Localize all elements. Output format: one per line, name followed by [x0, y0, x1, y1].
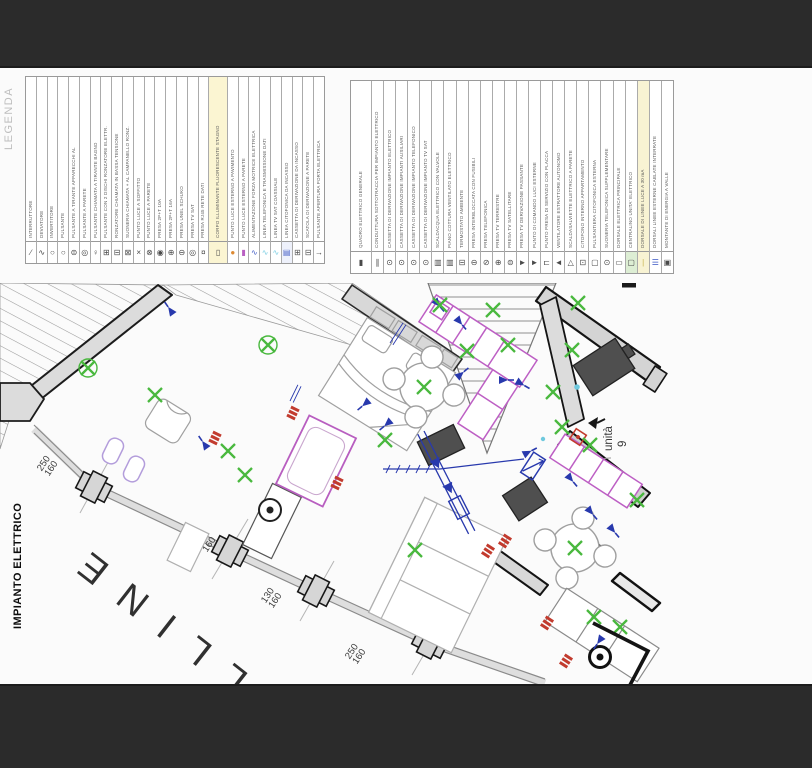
legend-column-label: PRESA UNEL SCHUKO: [177, 77, 187, 241]
symbol-column-symbol: |: [638, 251, 649, 273]
symbol-column-symbol: ▢: [626, 251, 637, 273]
legend-column-label: CORPO ILLUMINANTE FLUORESCENTE STAGNO: [209, 77, 227, 241]
bottom-letterbox-bar: [0, 684, 812, 768]
legend-column: PRESA UNEL SCHUKO ⊖: [177, 77, 188, 263]
symbol-column: PRESA INTERBLOCCATA CON FUSIBILI ⊖: [469, 81, 481, 273]
dim-window-1: 250160: [35, 454, 60, 478]
legend-column-symbol: ♀: [91, 241, 101, 263]
symbol-column-symbol: ▢: [589, 251, 600, 273]
legend-column: INTERRUTTORE ∕: [26, 77, 37, 263]
legend-column: PUNTO LUCE ESTERNO A PARETE ▮: [239, 77, 250, 263]
dim-window-4: 250160: [343, 642, 368, 666]
legend-column: SUONERIA CHIAMATA + AL CAMPANELLO RONZ. …: [123, 77, 134, 263]
legend-column-symbol: ○: [58, 241, 68, 263]
symbol-column: DORSALE ELETTRICA PRINCIPALE ▭: [614, 81, 626, 273]
symbol-column-label: CENTRALINO UNITA' ELETTRICO: [626, 81, 637, 251]
legend-column-label: INTERRUTTORE: [26, 77, 36, 241]
armchair: [143, 397, 193, 446]
legend-column-label: PULSANTE CON 2 DISCHI RONZATORE ELETTR.: [101, 77, 111, 241]
legend-column: PULSANTE ○: [58, 77, 69, 263]
legend-column-symbol: ⊟: [303, 241, 313, 263]
symbol-column: MONTANTE DI ENERGIA A VALLE ▣: [662, 81, 673, 273]
symbol-column-label: CITOFONO INTERNO APPARTAMENTO: [577, 81, 588, 251]
legend-column-label: PULSANTE A TIRANTE APPARECCHI AL: [69, 77, 79, 241]
legend-column: PULSANTE CHIAMATA A TIRANTE BAGNO ♀: [91, 77, 102, 263]
legend-column: CORPO ILLUMINANTE FLUORESCENTE STAGNO ▯: [209, 77, 228, 263]
legend-column-symbol: ▯: [209, 241, 227, 263]
symbol-column: PRESA TV SATELLITARE ⊜: [505, 81, 517, 273]
legend-column-symbol: ●: [228, 241, 238, 263]
legend-column-label: DEVIATORE: [37, 77, 47, 241]
coffee-table: [417, 425, 464, 466]
symbol-column-label: TERMOSTATO AMBIENTE: [457, 81, 468, 251]
symbol-column-symbol: ▥: [444, 251, 455, 273]
symbol-column: CASSETTA DI DERIVAZIONE IMPIANTO TV SAT …: [420, 81, 432, 273]
symbol-column: CASSETTA DI DERIVAZIONE IMPIANTO TELEFON…: [408, 81, 420, 273]
legend-column-symbol: ⊞: [293, 241, 303, 263]
symbol-column-label: PRESA TELEFONICA: [481, 81, 492, 251]
legend-column-label: PUNTO LUCE ESTERNO A PARETE: [239, 77, 249, 241]
symbol-column: SCALDACQUA ELETTRICO CON VALVOLE ▥: [432, 81, 444, 273]
symbol-column-symbol: ⊘: [481, 251, 492, 273]
symbol-column-symbol: ⊙: [384, 251, 395, 273]
sofa: [369, 497, 508, 652]
symbol-column: TERMOSTATO AMBIENTE ⊟: [457, 81, 469, 273]
legend-column: PRESA 2P+T 16A ⊕: [166, 77, 177, 263]
symbol-column-symbol: ⊏: [541, 251, 552, 273]
legend-column-label: PULSANTE: [58, 77, 68, 241]
legend-column-symbol: ⊕: [166, 241, 176, 263]
symbol-column-symbol: ▭: [614, 251, 625, 273]
symbol-column-symbol: ⊙: [420, 251, 431, 273]
symbol-column-label: SUONERIA TELEFONICA SUPPLEMENTARE: [601, 81, 612, 251]
legend-column-label: PULSANTE APERTURA PORTA ELETTRICA: [314, 77, 324, 241]
symbol-column: PIANO COTTURA VENTILATO ELETTRICO ▥: [444, 81, 456, 273]
symbol-column-symbol: ◄: [553, 251, 564, 273]
symbol-column: CASSETTA DI DERIVAZIONE IMPIANTO ELETTRI…: [384, 81, 396, 273]
legend-column-label: LINEA TELEFONICA E TRASMISSIONE DATI: [260, 77, 270, 241]
legend-column: PULSANTE A TIRANTE APPARECCHI AL ⊜: [69, 77, 80, 263]
legend-column-symbol: ∕: [26, 241, 36, 263]
north-dash: [622, 283, 636, 288]
legend-column: PUNTO LUCE A PARETE ⊗: [145, 77, 156, 263]
symbol-column-label: MONTANTE DI ENERGIA A VALLE: [662, 81, 673, 251]
legend-column-label: PUNTO LUCE ESTERNO A PAVIMENTO: [228, 77, 238, 241]
symbol-column-label: SCALDASALVIETTE ELETTRICO A PARETE: [565, 81, 576, 251]
symbol-column-symbol: ►: [517, 251, 528, 273]
legend-column-label: SUONERIA CHIAMATA + AL CAMPANELLO RONZ.: [123, 77, 133, 241]
symbol-column: SUONERIA TELEFONICA SUPPLEMENTARE ⊙: [601, 81, 613, 273]
bathroom-sink: [100, 436, 126, 466]
symbol-column-symbol: ∥: [372, 251, 383, 273]
symbol-column-label: CONDUTTURA SOTTOTRACCIA PER IMPIANTO ELE…: [372, 81, 383, 251]
unit-label: unità9: [603, 425, 629, 451]
legend-column: DEVIATORE ∿: [37, 77, 48, 263]
symbol-column-symbol: ☰: [650, 251, 661, 273]
symbol-column-symbol: ⊜: [505, 251, 516, 273]
symbol-column: PRESA TV DERIVAZIONE PASSANTE ►: [517, 81, 529, 273]
legenda-title: LEGENDA: [3, 87, 15, 150]
side-cabinet: [167, 522, 209, 571]
symbol-column: QUADRO ELETTRICO GENERALE ▮: [351, 81, 372, 273]
legend-column-symbol: ⊟: [112, 241, 122, 263]
symbol-column-symbol: ►: [529, 251, 540, 273]
legend-column-label: INVERTITORE: [48, 77, 58, 241]
symbol-column-symbol: ⊟: [457, 251, 468, 273]
legend-column-label: PUNTO LUCE A PARETE: [145, 77, 155, 241]
legend-column: PULSANTE A PARETE ◎: [80, 77, 91, 263]
legend-column: PRESA RJ45 RETE DATI ¤: [199, 77, 210, 263]
legend-column: INVERTITORE ○: [48, 77, 59, 263]
legend-column-symbol: ▤: [282, 241, 292, 263]
legend-column-symbol: ⊗: [145, 241, 155, 263]
legend-column-symbol: ◎: [80, 241, 90, 263]
legend-column-label: LINEA CITOFONICA DA INCASSO: [282, 77, 292, 241]
legend-column-symbol: ⊠: [123, 241, 133, 263]
legend-column-symbol: ○: [48, 241, 58, 263]
legend-column-symbol: ▮: [239, 241, 249, 263]
legend-column-symbol: ∿: [249, 241, 259, 263]
legend-column-label: CASSETTA DI DERIVAZIONE DA INCASSO: [293, 77, 303, 241]
symbol-column-symbol: ▣: [662, 251, 673, 273]
top-letterbox-bar: [0, 0, 812, 68]
legend-column-label: PRESA TV SAT: [188, 77, 198, 241]
symbol-column: SCALDASALVIETTE ELETTRICO A PARETE △: [565, 81, 577, 273]
symbol-column-label: PRESA TV DERIVAZIONE PASSANTE: [517, 81, 528, 251]
legend-column-label: PRESA 2P+T 16A: [166, 77, 176, 241]
legend-column-symbol: ◎: [188, 241, 198, 263]
symbol-column: PRESA TV TERRESTRE ⊕: [493, 81, 505, 273]
legend-column: PULSANTE CON 2 DISCHI RONZATORE ELETTR. …: [101, 77, 112, 263]
legend-column: PUNTO LUCE ESTERNO A PAVIMENTO ●: [228, 77, 239, 263]
symbol-column-label: DORSALI LINEE ESTERNE CABLATE INTERRATE: [650, 81, 661, 251]
legend-column: LINEA TV SAT COASSIALE ∿: [271, 77, 282, 263]
symbol-column-label: PUNTO PRESA DI SERVIZIO CON PLACCA: [541, 81, 552, 251]
symbol-column: PULSANTIERA CITOFONICA ESTERNA ▢: [589, 81, 601, 273]
symbol-column: VENTILATORE ESTRATTORE AUTONOMO ◄: [553, 81, 565, 273]
legend-column-symbol: ×: [134, 241, 144, 263]
symbol-column-label: PRESA TV TERRESTRE: [493, 81, 504, 251]
symbol-column: DORSALI LINEE ESTERNE CABLATE INTERRATE …: [650, 81, 662, 273]
symbol-column-symbol: ⊕: [493, 251, 504, 273]
symbol-column-symbol: ⊙: [601, 251, 612, 273]
legend-column-symbol: ∿: [37, 241, 47, 263]
symbol-column-label: PRESA TV SATELLITARE: [505, 81, 516, 251]
symbol-column-label: DORSALE ELETTRICA PRINCIPALE: [614, 81, 625, 251]
legend-column: PUNTO LUCE A SOFFITTO ×: [134, 77, 145, 263]
appliance-box-2: [503, 477, 548, 521]
symbol-column-symbol: △: [565, 251, 576, 273]
symbol-column-label: PRESA INTERBLOCCATA CON FUSIBILI: [469, 81, 480, 251]
symbol-column: DORSALE DI LINEE LUCE A 30 mA |: [638, 81, 650, 273]
symbol-column: CONDUTTURA SOTTOTRACCIA PER IMPIANTO ELE…: [372, 81, 384, 273]
floor-plan: 250160 130160 130160 250160: [0, 283, 812, 684]
symbol-column-symbol: ⊙: [396, 251, 407, 273]
legend-column-label: ALIMENTAZIONE FORZA MOTRICE ELETTRICA: [249, 77, 259, 241]
legend-column: SCATOLA DI DERIVAZIONE A PARETE ⊟: [303, 77, 314, 263]
legend-column: RONZATORE CHIAMATA IN BASSA TENSIONE ⊟: [112, 77, 123, 263]
bathroom-sink: [121, 454, 147, 484]
legend-column-label: PULSANTE A PARETE: [80, 77, 90, 241]
drawing-viewer: { "page": {"background":"#fbfbfb","bar_c…: [0, 0, 812, 768]
appliance-box-1: [573, 334, 641, 396]
simboli-table: QUADRO ELETTRICO GENERALE ▮ CONDUTTURA S…: [350, 80, 674, 274]
dim-window-3: 130160: [259, 586, 284, 610]
legend-column: PULSANTE APERTURA PORTA ELETTRICA →: [314, 77, 324, 263]
symbol-column-label: PULSANTIERA CITOFONICA ESTERNA: [589, 81, 600, 251]
legend-column-symbol: ∿: [260, 241, 270, 263]
legend-column-label: PUNTO LUCE A SOFFITTO: [134, 77, 144, 241]
legend-column-label: PRESA RJ45 RETE DATI: [199, 77, 209, 241]
legend-column-label: SCATOLA DI DERIVAZIONE A PARETE: [303, 77, 313, 241]
symbol-column: CASSETTA DI DERIVAZIONE IMPIANTI AUSILIA…: [396, 81, 408, 273]
legend-column-label: PRESA 2P+T 10A: [155, 77, 165, 241]
legend-column-symbol: →: [314, 241, 324, 263]
legend-column: LINEA TELEFONICA E TRASMISSIONE DATI ∿: [260, 77, 271, 263]
symbol-column-symbol: ▮: [351, 251, 371, 273]
symbol-column: PUNTO DI COMANDO LUCI ESTERNE ►: [529, 81, 541, 273]
symbol-column: PUNTO PRESA DI SERVIZIO CON PLACCA ⊏: [541, 81, 553, 273]
symbol-column-symbol: ⊖: [469, 251, 480, 273]
legend-column: PRESA TV SAT ◎: [188, 77, 199, 263]
legend-column-label: PULSANTE CHIAMATA A TIRANTE BAGNO: [91, 77, 101, 241]
legenda-table: INTERRUTTORE ∕ DEVIATORE ∿ INVERTITORE: [25, 76, 325, 264]
symbol-column-label: CASSETTA DI DERIVAZIONE IMPIANTO TV SAT: [420, 81, 431, 251]
legend-column-symbol: ⊜: [69, 241, 79, 263]
symbol-column: PRESA TELEFONICA ⊘: [481, 81, 493, 273]
symbol-column: CENTRALINO UNITA' ELETTRICO ▢: [626, 81, 638, 273]
legend-column-label: RONZATORE CHIAMATA IN BASSA TENSIONE: [112, 77, 122, 241]
symbol-column-label: CASSETTA DI DERIVAZIONE IMPIANTI AUSILIA…: [396, 81, 407, 251]
symbol-column-label: SCALDACQUA ELETTRICO CON VALVOLE: [432, 81, 443, 251]
legend-column: CASSETTA DI DERIVAZIONE DA INCASSO ⊞: [293, 77, 304, 263]
legend-column-symbol: ◉: [155, 241, 165, 263]
legend-column-symbol: ⊖: [177, 241, 187, 263]
symbol-column-label: VENTILATORE ESTRATTORE AUTONOMO: [553, 81, 564, 251]
symbol-column-label: DORSALE DI LINEE LUCE A 30 mA: [638, 81, 649, 251]
legend-column-label: LINEA TV SAT COASSIALE: [271, 77, 281, 241]
symbol-column-label: PIANO COTTURA VENTILATO ELETTRICO: [444, 81, 455, 251]
symbol-column-symbol: ⊡: [577, 251, 588, 273]
symbol-column-label: QUADRO ELETTRICO GENERALE: [351, 81, 371, 251]
legend-column: LINEA CITOFONICA DA INCASSO ▤: [282, 77, 293, 263]
legend-column: PRESA 2P+T 10A ◉: [155, 77, 166, 263]
symbol-column-label: CASSETTA DI DERIVAZIONE IMPIANTO TELEFON…: [408, 81, 419, 251]
legend-column-symbol: ⊞: [101, 241, 111, 263]
legend-column: ALIMENTAZIONE FORZA MOTRICE ELETTRICA ∿: [249, 77, 260, 263]
symbol-column-label: PUNTO DI COMANDO LUCI ESTERNE: [529, 81, 540, 251]
symbol-column: CITOFONO INTERNO APPARTAMENTO ⊡: [577, 81, 589, 273]
legend-column-symbol: ∿: [271, 241, 281, 263]
symbol-column-label: CASSETTA DI DERIVAZIONE IMPIANTO ELETTRI…: [384, 81, 395, 251]
symbol-column-symbol: ⊙: [408, 251, 419, 273]
legend-column-symbol: ¤: [199, 241, 209, 263]
symbol-column-symbol: ▥: [432, 251, 443, 273]
